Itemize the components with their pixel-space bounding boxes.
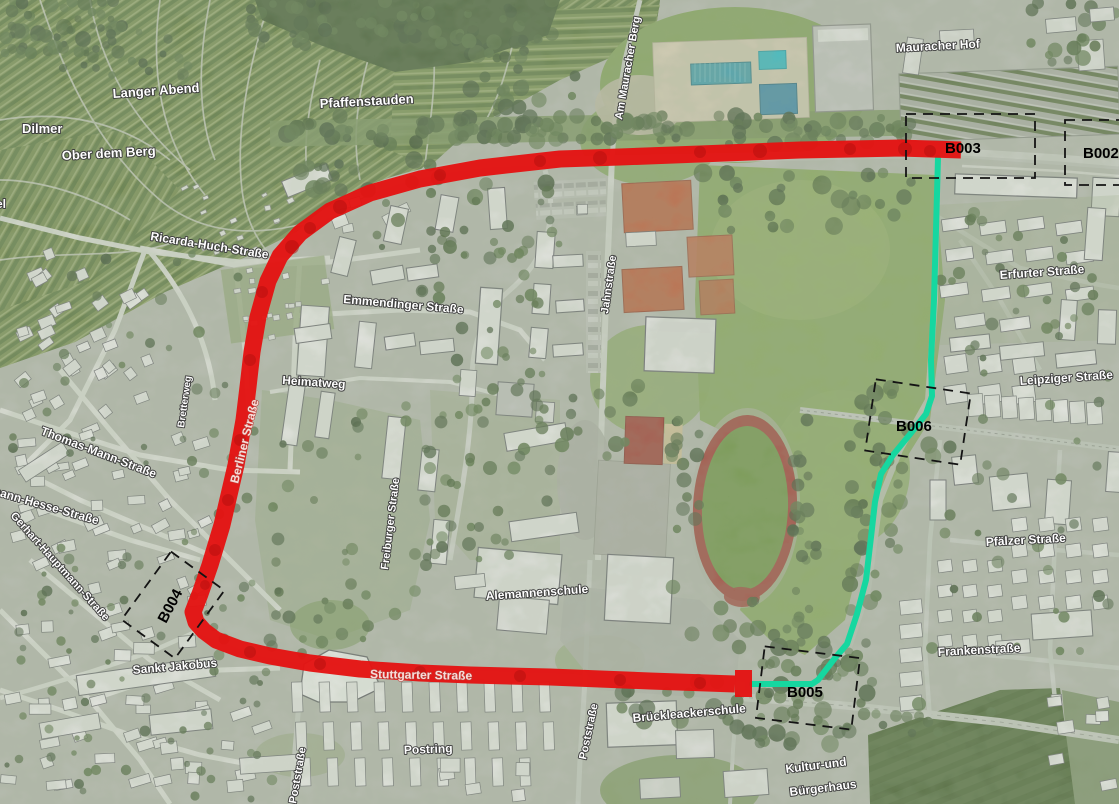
svg-text:Dilmer: Dilmer (22, 121, 62, 136)
svg-text:B005: B005 (787, 684, 823, 701)
svg-text:el: el (0, 197, 6, 211)
svg-text:B002: B002 (1083, 145, 1119, 162)
svg-text:B006: B006 (896, 418, 932, 435)
svg-text:B003: B003 (945, 140, 981, 157)
svg-text:Stuttgarter Straße: Stuttgarter Straße (370, 667, 473, 683)
svg-text:Postring: Postring (404, 741, 453, 757)
